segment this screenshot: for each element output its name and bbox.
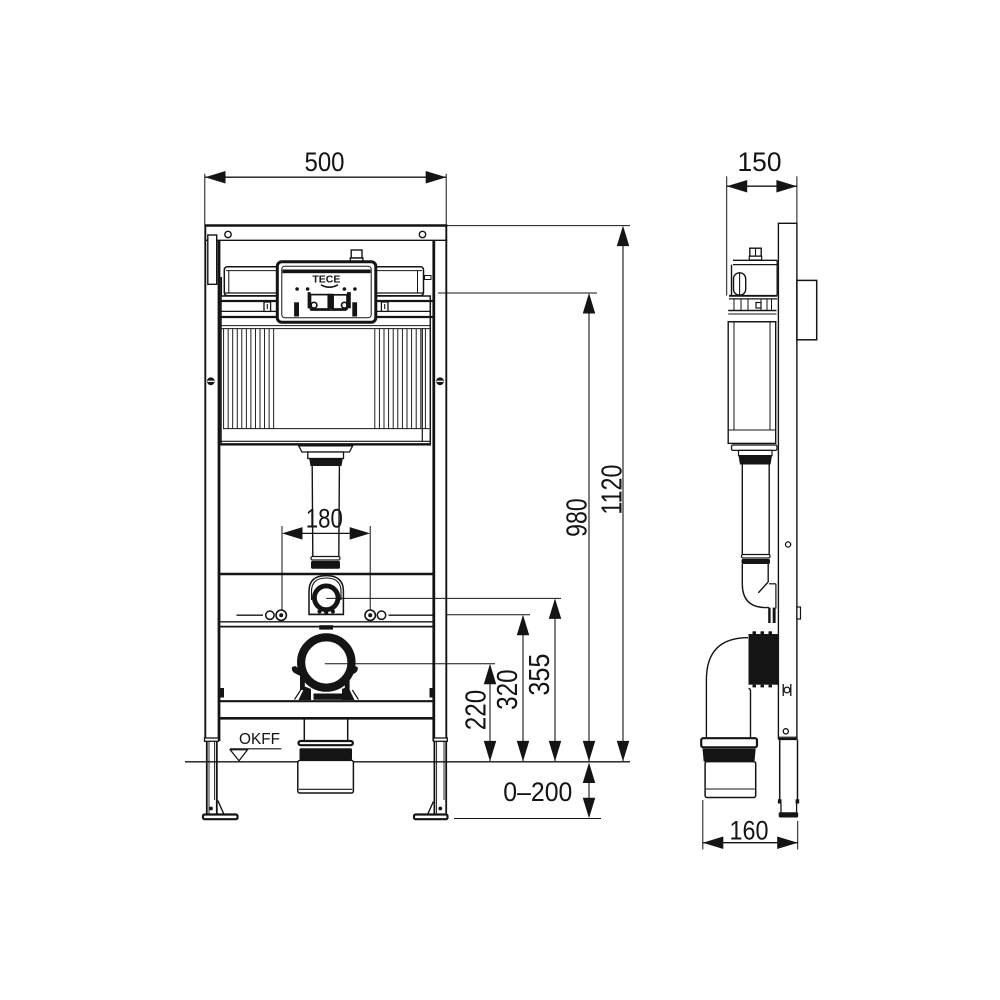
svg-text:TECE: TECE [312, 273, 340, 285]
svg-text:355: 355 [524, 654, 556, 696]
svg-text:0–200: 0–200 [503, 777, 572, 807]
svg-text:160: 160 [730, 816, 769, 846]
svg-text:OKFF: OKFF [239, 731, 280, 748]
svg-text:980: 980 [561, 498, 593, 537]
svg-text:1120: 1120 [596, 465, 628, 515]
svg-text:320: 320 [492, 669, 524, 710]
svg-text:500: 500 [305, 147, 345, 177]
svg-text:180: 180 [306, 504, 343, 534]
svg-text:150: 150 [738, 147, 782, 177]
svg-text:220: 220 [461, 690, 493, 731]
